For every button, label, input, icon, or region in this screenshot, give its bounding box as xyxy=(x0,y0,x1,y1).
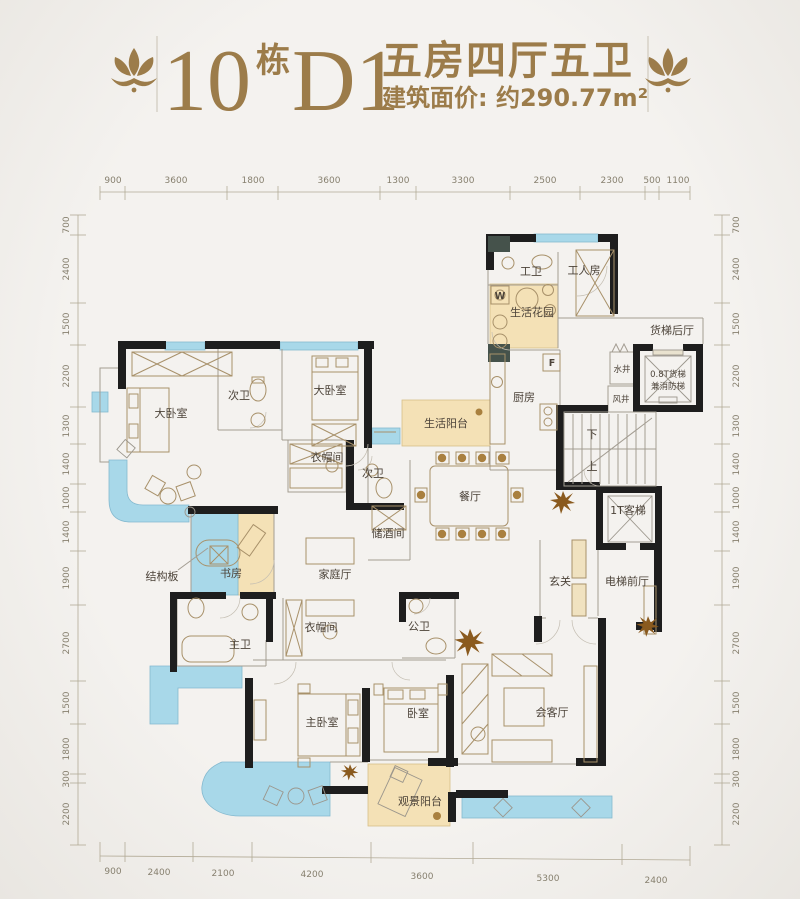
svg-text:3600: 3600 xyxy=(411,872,434,882)
room-label-wine-storage: 储酒间 xyxy=(372,526,405,540)
title-building-suffix: 栋 xyxy=(256,41,290,81)
room-label-master-suite: 主卧室 xyxy=(306,715,339,729)
svg-text:2100: 2100 xyxy=(212,869,235,879)
room-label-second-bath-2: 次卫 xyxy=(362,466,384,480)
svg-text:2700: 2700 xyxy=(732,631,742,654)
svg-text:2400: 2400 xyxy=(148,868,171,878)
svg-text:2200: 2200 xyxy=(732,802,742,825)
svg-text:1400: 1400 xyxy=(62,520,72,543)
room-label-master-bedroom-1: 大卧室 xyxy=(155,406,188,420)
svg-text:2200: 2200 xyxy=(62,364,72,387)
dimension-chain-top: 900 3600 1800 3600 1300 3300 2500 2300 5… xyxy=(100,176,690,200)
floorplan-canvas: 10 栋 D1 五房四厅五卫 建筑面价: 约290.77m² 900 3600 … xyxy=(0,0,800,899)
svg-text:2500: 2500 xyxy=(534,176,557,186)
room-label-life-garden: 生活花园 xyxy=(510,305,554,319)
room-label-cloakroom-2: 衣帽间 xyxy=(305,620,338,634)
room-label-service-balcony: 生活阳台 xyxy=(424,416,468,430)
svg-text:300: 300 xyxy=(62,770,72,787)
room-label-worker-bath: 工卫 xyxy=(520,265,542,278)
svg-text:1900: 1900 xyxy=(732,566,742,589)
svg-text:2200: 2200 xyxy=(732,364,742,387)
title-layout-text: 五房四厅五卫 xyxy=(382,38,634,84)
room-label-freight-lobby: 货梯后厅 xyxy=(650,323,694,337)
svg-text:1800: 1800 xyxy=(732,737,742,760)
dimension-chain-bottom: 900 2400 2100 4200 3600 5300 2400 xyxy=(100,842,690,886)
svg-text:700: 700 xyxy=(732,216,742,233)
room-label-elevator-lobby: 电梯前厅 xyxy=(605,574,649,588)
room-label-reception: 会客厅 xyxy=(536,705,569,719)
room-label-water-shaft: 水井 xyxy=(613,364,630,375)
svg-text:3600: 3600 xyxy=(165,176,188,186)
furniture-left-wing xyxy=(127,352,396,504)
room-label-air-shaft: 风井 xyxy=(612,394,629,405)
room-label-kitchen: 厨房 xyxy=(513,391,535,404)
furniture-lower-bedrooms xyxy=(254,684,447,767)
svg-text:2400: 2400 xyxy=(62,257,72,280)
svg-text:1100: 1100 xyxy=(667,176,690,186)
fleur-ornament-right-icon xyxy=(645,48,691,92)
title-building-number: 10 xyxy=(163,33,251,130)
svg-text:1500: 1500 xyxy=(62,312,72,335)
svg-text:3300: 3300 xyxy=(452,176,475,186)
room-label-cloakroom-1: 衣帽间 xyxy=(311,450,344,464)
svg-text:900: 900 xyxy=(104,176,121,186)
room-label-freight-elevator-line1: 0.8T货梯 xyxy=(650,369,686,380)
room-label-study: 书房 xyxy=(220,567,242,580)
room-label-dining: 餐厅 xyxy=(459,489,481,503)
svg-text:1400: 1400 xyxy=(732,452,742,475)
svg-text:3600: 3600 xyxy=(318,176,341,186)
fleur-ornament-left-icon xyxy=(111,48,157,92)
svg-text:1400: 1400 xyxy=(732,520,742,543)
room-label-foyer: 玄关 xyxy=(549,574,571,588)
balcony-and-water-fills xyxy=(92,234,612,826)
svg-text:1300: 1300 xyxy=(62,414,72,437)
svg-text:2300: 2300 xyxy=(601,176,624,186)
room-label-worker-room: 工人房 xyxy=(568,264,601,277)
svg-text:700: 700 xyxy=(62,216,72,233)
floorplan-page: 10 栋 D1 五房四厅五卫 建筑面价: 约290.77m² 900 3600 … xyxy=(0,0,800,899)
room-label-passenger-elevator: 1T客梯 xyxy=(610,503,646,517)
room-label-view-balcony: 观景阳台 xyxy=(398,794,442,808)
svg-text:1500: 1500 xyxy=(732,691,742,714)
svg-text:2200: 2200 xyxy=(62,802,72,825)
svg-text:2400: 2400 xyxy=(645,876,668,886)
stair-label-down: 下 xyxy=(587,428,598,441)
svg-text:1300: 1300 xyxy=(387,176,410,186)
svg-text:500: 500 xyxy=(643,176,660,186)
svg-text:1400: 1400 xyxy=(62,452,72,475)
room-label-family-hall: 家庭厅 xyxy=(319,567,352,581)
svg-text:5300: 5300 xyxy=(537,874,560,884)
fridge-symbol: F xyxy=(549,358,556,369)
room-label-public-bath: 公卫 xyxy=(408,620,430,633)
svg-text:1900: 1900 xyxy=(62,566,72,589)
svg-text:1000: 1000 xyxy=(62,486,72,509)
svg-text:1300: 1300 xyxy=(732,414,742,437)
room-label-master-bedroom-2: 大卧室 xyxy=(314,383,347,397)
room-label-bedroom: 卧室 xyxy=(407,706,429,720)
svg-text:1800: 1800 xyxy=(62,737,72,760)
dimension-chain-right: 700 2400 1500 2200 1300 1400 1000 1400 1… xyxy=(714,215,742,845)
svg-text:2400: 2400 xyxy=(732,257,742,280)
room-label-structural-slab: 结构板 xyxy=(146,569,179,583)
room-label-second-bath-1: 次卫 xyxy=(228,388,250,402)
stair-label-up: 上 xyxy=(587,460,598,473)
svg-text:1500: 1500 xyxy=(62,691,72,714)
room-label-master-bath: 主卫 xyxy=(229,638,251,651)
svg-text:2700: 2700 xyxy=(62,631,72,654)
svg-text:4200: 4200 xyxy=(301,870,324,880)
svg-text:1800: 1800 xyxy=(242,176,265,186)
title-area-text: 建筑面价: 约290.77m² xyxy=(382,84,648,112)
svg-text:300: 300 xyxy=(732,770,742,787)
room-label-freight-elevator-line2: 兼消防梯 xyxy=(651,381,686,392)
dimension-chain-left: 700 2400 1500 2200 1300 1400 1000 1400 1… xyxy=(62,215,86,845)
svg-text:1500: 1500 xyxy=(732,312,742,335)
title-block: 10 栋 D1 五房四厅五卫 建筑面价: 约290.77m² xyxy=(111,33,691,130)
svg-text:1000: 1000 xyxy=(732,486,742,509)
svg-text:900: 900 xyxy=(104,867,121,877)
washer-symbol: W xyxy=(495,291,506,302)
